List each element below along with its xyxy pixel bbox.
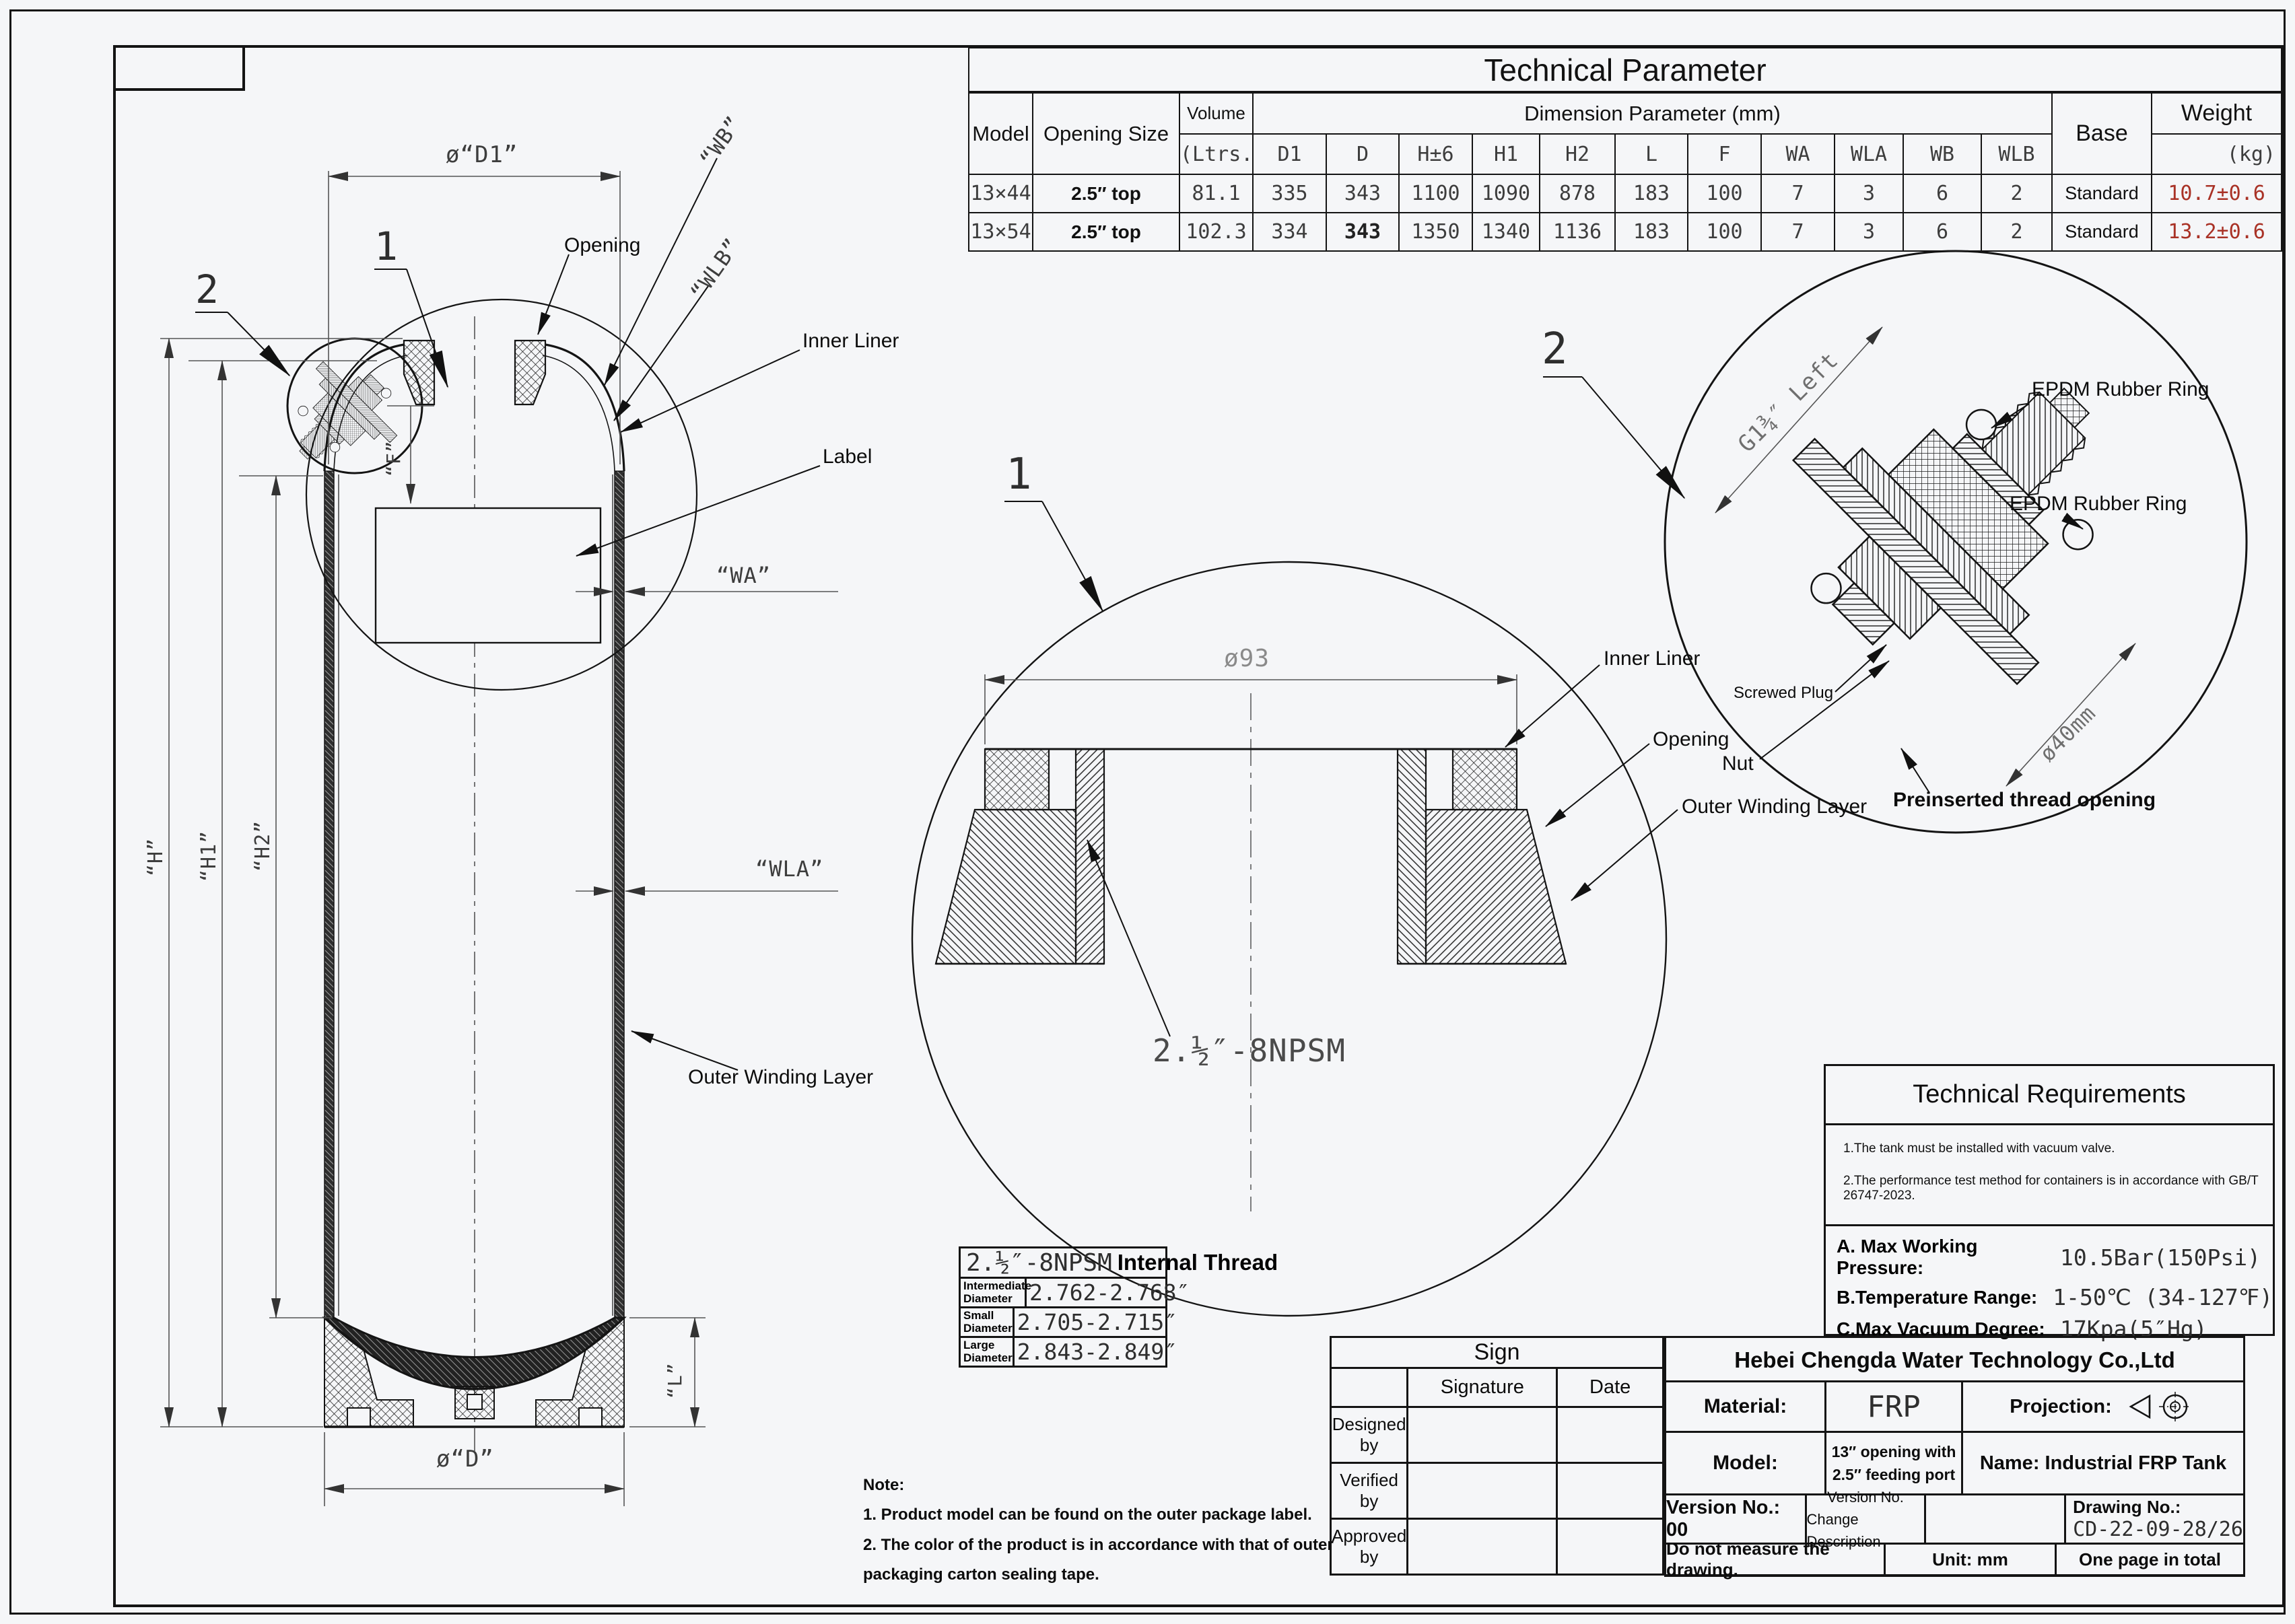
model-value-line2: 2.5″ feeding port — [1832, 1463, 1955, 1487]
model-value-line1: 13″ opening with — [1832, 1440, 1956, 1464]
version-change-cell: Version No. Change Description — [1805, 1495, 1925, 1543]
projection-label: Projection: — [2010, 1396, 2111, 1418]
detail1-inner-liner-label: Inner Liner — [1604, 647, 1700, 670]
note-title: Note: — [863, 1471, 1342, 1500]
version-number: Version No.: 00 — [1664, 1495, 1805, 1543]
technical-requirements-box: Technical Requirements 1.The tank must b… — [1824, 1064, 2275, 1336]
drawing-no-value: CD-22-09-28/26 — [2073, 1518, 2243, 1541]
title-block: Hebei Chengda Water Technology Co.,Ltd M… — [1664, 1336, 2245, 1577]
callout-1-main: 1 — [374, 223, 399, 269]
callout-1-detail: 1 — [1006, 450, 1033, 499]
opening-label: Opening — [564, 234, 640, 257]
npsm-thread-label: 2.½″-8NPSM — [1153, 1032, 1346, 1069]
detail1-opening-label: Opening — [1653, 728, 1729, 751]
epdm-ring-label-2: EPDM Rubber Ring — [2010, 493, 2187, 516]
tr-note-2: 2.The performance test method for contai… — [1843, 1174, 2273, 1203]
note-item-2: 2. The color of the product is in accord… — [863, 1530, 1342, 1590]
tank-neck-flange-left — [404, 341, 434, 404]
verified-by-date-cell[interactable] — [1557, 1463, 1664, 1519]
designed-by-signature-cell[interactable] — [1408, 1407, 1557, 1463]
epdm-ring-label-1: EPDM Rubber Ring — [2032, 378, 2209, 401]
technical-requirements-specs: A. Max Working Pressure:10.5Bar(150Psi) … — [1826, 1226, 2273, 1342]
detail-2-view — [1543, 251, 2247, 833]
outer-winding-label: Outer Winding Layer — [688, 1066, 873, 1089]
unit-label: Unit: mm — [1884, 1545, 2055, 1574]
dim-93-label: ø93 — [1224, 645, 1270, 672]
dim-h-label: “H” — [144, 838, 168, 876]
approved-by-date-cell[interactable] — [1557, 1519, 1664, 1575]
dim-d-label: ø“D” — [436, 1446, 494, 1473]
technical-requirements-notes: 1.The tank must be installed with vacuum… — [1826, 1125, 2273, 1226]
label-label: Label — [823, 446, 872, 468]
company-name: Hebei Chengda Water Technology Co.,Ltd — [1664, 1338, 2243, 1382]
model-label: Model: — [1664, 1433, 1824, 1493]
dim-h1-label: “H1” — [197, 831, 221, 882]
thread-label: Intermediate Diameter — [961, 1279, 1027, 1306]
drawing-number-cell: Drawing No.: CD-22-09-28/26 — [2064, 1495, 2243, 1543]
thread-row-large: Large Diameter 2.843-2.849″ — [959, 1338, 1167, 1368]
sign-table: Sign Signature Date Designed by Verified… — [1330, 1336, 1664, 1576]
drawing-no-label: Drawing No.: — [2073, 1497, 2181, 1518]
preinserted-label: Preinserted thread opening — [1893, 789, 2156, 812]
param-row-13x44: 13×44 2.5″ top 81.1 335343 11001090 8781… — [969, 174, 2282, 213]
thread-row-intermediate: Intermediate Diameter 2.762-2.768″ — [959, 1279, 1167, 1308]
tank-label-rect — [376, 508, 601, 643]
col-model: Model — [969, 92, 1033, 174]
col-base: Base — [2052, 92, 2152, 174]
thread-value: 2.762-2.768″ — [1027, 1279, 1190, 1306]
dim-wa-label: “WA” — [716, 563, 771, 588]
spec-pressure-value: 10.5Bar(150Psi) — [2060, 1244, 2261, 1271]
col-weight: Weight — [2152, 92, 2282, 134]
dim-f-label: “F” — [382, 440, 405, 476]
col-volume: Volume — [1179, 92, 1253, 134]
designed-by-date-cell[interactable] — [1557, 1407, 1664, 1463]
material-value: FRP — [1824, 1382, 1961, 1431]
sign-col-signature: Signature — [1408, 1368, 1557, 1407]
param-row-13x54: 13×54 2.5″ top 102.3 334343 13501340 113… — [969, 213, 2282, 251]
product-name: Name: Industrial FRP Tank — [1961, 1433, 2243, 1493]
sign-col-date: Date — [1557, 1368, 1664, 1407]
thread-label: Small Diameter — [961, 1308, 1015, 1336]
param-table-title: Technical Parameter — [969, 48, 2282, 92]
page-count-label: One page in total — [2055, 1545, 2243, 1574]
projection-cell: Projection: — [1961, 1382, 2243, 1431]
technical-parameter-table: Technical Parameter Model Opening Size V… — [968, 47, 2282, 252]
tank-neck-flange-right — [515, 341, 545, 404]
col-opening-size: Opening Size — [1033, 92, 1179, 174]
thread-value: 2.705-2.715″ — [1015, 1308, 1177, 1336]
tank-dome-right-outer — [545, 345, 624, 471]
dim-wla-label: “WLA” — [755, 856, 823, 882]
do-not-measure-note: Do not measure the drawing. — [1664, 1545, 1884, 1574]
internal-thread-table: 2.½″-8NPSM Internal Thread Intermediate … — [959, 1246, 1167, 1368]
tank-right-wall — [615, 471, 624, 1318]
col-dimension-parameter: Dimension Parameter (mm) — [1253, 92, 2052, 134]
tr-note-1: 1.The tank must be installed with vacuum… — [1843, 1141, 2273, 1156]
sign-row-designed-by: Designed by — [1331, 1407, 1408, 1463]
callout-2-detail: 2 — [1542, 324, 1569, 374]
col-volume-unit: (Ltrs.) — [1179, 134, 1253, 174]
callout-2-main: 2 — [195, 267, 219, 312]
material-label: Material: — [1664, 1382, 1824, 1431]
version-empty-cell — [1924, 1495, 2064, 1543]
approved-by-signature-cell[interactable] — [1408, 1519, 1557, 1575]
version-col-label1: Version No. — [1827, 1486, 1904, 1508]
sign-title: Sign — [1331, 1337, 1664, 1368]
spec-temperature-label: B.Temperature Range: — [1837, 1287, 2053, 1308]
thread-table-title-rest: Internal Thread — [1118, 1250, 1278, 1275]
dim-l-label: “L” — [664, 1362, 686, 1399]
thread-row-small: Small Diameter 2.705-2.715″ — [959, 1308, 1167, 1338]
technical-requirements-title: Technical Requirements — [1826, 1066, 2273, 1125]
tank-left-wall — [324, 471, 334, 1318]
thread-label: Large Diameter — [961, 1338, 1015, 1366]
note-item-1: 1. Product model can be found on the out… — [863, 1500, 1342, 1530]
note-block: Note: 1. Product model can be found on t… — [863, 1471, 1342, 1590]
detail-1-view — [912, 501, 1678, 1316]
thread-value: 2.843-2.849″ — [1015, 1338, 1177, 1366]
dim-d1-label: ø“D1” — [446, 141, 518, 168]
thread-table-title-thread: 2.½″-8NPSM — [966, 1249, 1112, 1277]
tank-front-view — [267, 299, 697, 1454]
nut-label: Nut — [1722, 752, 1754, 775]
first-angle-projection-icon — [2124, 1389, 2197, 1424]
spec-temperature-value: 1-50℃ (34-127℉) — [2053, 1284, 2273, 1310]
col-weight-unit: (kg) — [2152, 134, 2282, 174]
thread-table-title: 2.½″-8NPSM Internal Thread — [959, 1246, 1167, 1279]
screwed-plug-label: Screwed Plug — [1734, 684, 1833, 703]
model-value: 13″ opening with 2.5″ feeding port — [1824, 1433, 1961, 1493]
spec-pressure-label: A. Max Working Pressure: — [1837, 1236, 2060, 1279]
drawing-sheet: ø“D1” “WB” “WLB” Opening Inner Liner Lab… — [0, 0, 2295, 1624]
verified-by-signature-cell[interactable] — [1408, 1463, 1557, 1519]
dim-h2-label: “H2” — [251, 820, 275, 872]
detail1-outer-winding-label: Outer Winding Layer — [1682, 796, 1867, 818]
inner-liner-label: Inner Liner — [802, 330, 899, 353]
